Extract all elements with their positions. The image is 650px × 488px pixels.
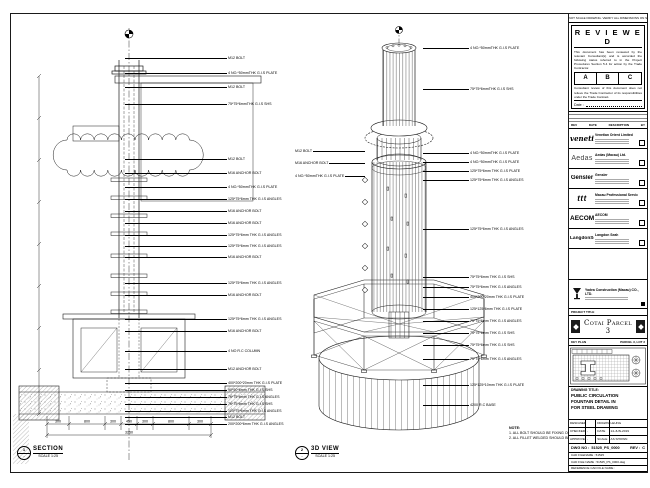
callout-label: 4 NO.*50mmTHK G.I.S PLATE xyxy=(469,161,519,165)
consultant-logo: Aedas xyxy=(570,155,594,162)
callout-label: 125*125*10mm THK G.I.S PLATE xyxy=(469,384,524,388)
callout: M12 BOLT xyxy=(125,416,279,419)
leader-line xyxy=(423,359,469,360)
callout: 125*75*6mm THK G.I.S ANGLES xyxy=(125,245,279,248)
status-boxes: A B C xyxy=(574,72,642,85)
callout: 75*75*6mm THK G.I.S ANGLES xyxy=(125,396,279,399)
leader-line xyxy=(423,345,469,346)
rev-label: REV : xyxy=(630,446,640,450)
callout: M16 ANCHOR BOLT xyxy=(295,162,365,165)
date-label: Date : xyxy=(574,103,584,107)
callout: M12 BOLT xyxy=(125,158,279,161)
view-scale: SCALE 1:25 xyxy=(311,454,339,459)
callout: M16 ANCHOR BOLT xyxy=(125,330,279,333)
leader-line xyxy=(125,369,227,370)
consultant-info: AECOM xyxy=(595,213,638,223)
callout: 75*75*6mm THK G.I.S SHS xyxy=(423,344,571,347)
approved-value: - xyxy=(586,436,596,444)
checkbox-icon xyxy=(639,240,645,246)
callout: 4 NO.*50mmTHK G.I.S PLATE xyxy=(295,175,365,178)
leader-line xyxy=(125,383,227,384)
status-a: A xyxy=(575,73,597,84)
leader-line xyxy=(125,187,227,188)
callout-label: 75*75*6mm THK G.I.S ANGLES xyxy=(469,320,521,324)
callout-label: 400*200*20mm THK G.I.S PLATE xyxy=(469,296,524,300)
checked-value: - xyxy=(586,428,596,436)
callout-label: 75*75*6mmTHK G.I.S SHS xyxy=(469,88,514,92)
scale-value: AS SHOWN xyxy=(610,436,647,444)
leader-line xyxy=(125,104,227,105)
callout: 125*75*6mm THK G.I.S ANGLES xyxy=(125,282,279,285)
dwg-no-row: DWG NO : 51525_PS_0000 REV : C xyxy=(569,444,647,453)
iso-top-assembly xyxy=(371,43,427,136)
callout-label: M12 BOLT xyxy=(295,150,313,154)
reviewed-stamp: R E V I E W E D This document has been r… xyxy=(571,25,645,109)
callout-label: M12 BOLT xyxy=(227,416,245,420)
address-lines xyxy=(595,159,638,164)
consultant-row: AECOM AECOM xyxy=(569,209,647,229)
callout: M12 BOLT xyxy=(295,150,365,153)
leader-line xyxy=(423,162,469,163)
leader-line xyxy=(125,331,227,332)
callout-label: 4 NO R.C COLUMN xyxy=(227,350,260,354)
callout-label: M12 ANCHOR BOLT xyxy=(227,368,261,372)
leader-line xyxy=(125,424,227,425)
callout: 75*75*6mmTHK G.I.S SHS xyxy=(125,103,279,106)
leader-line xyxy=(313,151,365,152)
leader-line xyxy=(423,89,469,90)
callout: 4 NO.*50mmTHK G.I.S PLATE xyxy=(125,186,279,189)
leader-line xyxy=(423,277,469,278)
drawing-title-block: DRAWING TITLE: PUBLIC CIRCULATION FOUNTA… xyxy=(569,387,647,420)
leader-line xyxy=(125,223,227,224)
view-scale: SCALE 1:25 xyxy=(33,454,63,459)
rev-col: REV xyxy=(571,123,577,127)
status-b: B xyxy=(597,73,619,84)
leader-line xyxy=(423,297,469,298)
designed-label: DESIGNED xyxy=(569,420,586,428)
leader-line xyxy=(345,176,365,177)
section-view: 300 800 300 450 300 800 300 3250 M12 BOL… xyxy=(13,22,285,468)
callout-label: 4200 R.C BASE xyxy=(469,404,496,408)
view-bubble: 1 - xyxy=(17,446,31,460)
bubble-ref: - xyxy=(18,454,30,460)
checkbox-icon xyxy=(639,200,645,206)
contractor-row: Yadea Construction (Macau) CO., LTD. xyxy=(569,280,647,309)
callout: 4 NO.*50mmTHK G.I.S PLATE xyxy=(423,161,571,164)
leader-line xyxy=(125,73,227,74)
rev-value: C xyxy=(642,446,645,450)
consultant-info: Aedas (Macau) Ltd. xyxy=(595,153,638,163)
cad-file-row: REFERENCE CAD FILE NAME : xyxy=(569,466,647,473)
callout: M16 ANCHOR BOLT xyxy=(125,172,279,175)
datum-marker-icon xyxy=(396,27,403,34)
svg-text:300: 300 xyxy=(110,420,116,424)
leader-line xyxy=(125,397,227,398)
iso-main-cylinder xyxy=(372,155,426,319)
callout: 125*75*6mm THK G.I.S PLATE xyxy=(423,170,571,173)
contractor-logo-icon xyxy=(571,287,583,300)
callout: 4 NO.*50mmTHK G.I.S PLATE xyxy=(423,152,571,155)
callout: M16 ANCHOR BOLT xyxy=(125,256,279,259)
callout-label: 75*75*6mm THK G.I.S SHS xyxy=(469,344,514,348)
date-value: 14-JUN-2019 xyxy=(610,428,647,436)
callout: M16 ANCHOR BOLT xyxy=(125,210,279,213)
callout-label: 125*75*6mm THK G.I.S ANGLES xyxy=(227,198,281,202)
callout-label: 75*75*6mmTHK G.I.S SHS xyxy=(227,103,272,107)
leader-line xyxy=(125,411,227,412)
leader-line xyxy=(423,180,469,181)
drawn-value: LEUNG xyxy=(610,420,647,428)
callout-label: 90*50*6mm THK G.I.S SHS xyxy=(227,389,272,393)
leader-line xyxy=(423,333,469,334)
consultant-logo: Gensler xyxy=(570,175,594,181)
consultant-logo: ttt xyxy=(570,194,594,203)
stamp-date-row: Date : xyxy=(574,100,642,107)
callout: 125*75*6mm THK G.I.S ANGLES xyxy=(423,179,571,182)
date-line xyxy=(586,103,642,107)
leader-line xyxy=(125,211,227,212)
consultant-row: LangdonSeah Langdon Seah xyxy=(569,229,647,249)
checkbox-icon xyxy=(639,140,645,146)
checkbox-icon xyxy=(639,180,645,186)
key-plan-label: KEY PLAN xyxy=(571,340,586,344)
callout: M12 ANCHOR BOLT xyxy=(125,368,279,371)
callout-label: 4 NO.*50mmTHK G.I.S PLATE xyxy=(469,47,519,51)
leader-line xyxy=(423,48,469,49)
callout-label: 125*75*6mm THK G.I.S ANGLES xyxy=(227,282,281,286)
consultant-name: AECOM xyxy=(595,213,638,217)
consultant-name: Macau Professional Services Ltd. xyxy=(595,193,638,197)
callout: 4 NO R.C COLUMN xyxy=(125,350,279,353)
section-callouts: M12 BOLT 4 NO.*50mmTHK G.I.S PLATE M12 B… xyxy=(125,22,279,468)
callout-label: 75*75*6mm THK G.I.S SHS xyxy=(469,332,514,336)
leader-line xyxy=(125,417,227,418)
consultant-name: Aedas (Macau) Ltd. xyxy=(595,153,638,157)
callout-label: M16 ANCHOR BOLT xyxy=(227,172,261,176)
designed-value xyxy=(586,420,596,428)
revision-rows xyxy=(569,111,647,122)
callout: 75*75*6mm THK G.I.S ANGLES xyxy=(423,286,571,289)
leader-line xyxy=(125,319,227,320)
callout: 75*75*6mm THK G.I.S ANGLES xyxy=(423,320,571,323)
view-name: SECTION xyxy=(33,446,63,454)
leader-line xyxy=(423,287,469,288)
dwg-no-label: DWG NO : xyxy=(571,446,589,450)
note-title: NOTE: xyxy=(509,426,520,430)
title-block: DO NOT SCALE DRAWING. VERIFY ALL DIMENSI… xyxy=(568,14,647,472)
leader-line xyxy=(329,163,365,164)
revision-header: REV DATE DESCRIPTION BY xyxy=(569,122,647,129)
leader-line xyxy=(125,235,227,236)
callout-label: 75*75*6mm THK G.I.S ANGLES xyxy=(227,396,279,400)
consultant-logo: LangdonSeah xyxy=(570,236,594,241)
no-scale-note: DO NOT SCALE DRAWING. VERIFY ALL DIMENSI… xyxy=(569,14,647,23)
callout-label: M12 BOLT xyxy=(227,57,245,61)
callout-label: M12 BOLT xyxy=(227,86,245,90)
consultant-info: Langdon Seah xyxy=(595,233,638,243)
callout: M16 ANCHOR BOLT xyxy=(125,294,279,297)
callout-label: 125*75*6mm THK G.I.S ANGLES xyxy=(469,179,523,183)
leader-line xyxy=(423,153,469,154)
dwg-no: 51525_PS_0000 xyxy=(591,446,628,450)
leader-line xyxy=(125,295,227,296)
address-lines xyxy=(595,139,638,144)
callout-label: 125*75*6mm THK G.I.S ANGLES xyxy=(227,410,281,414)
leader-line xyxy=(125,351,227,352)
ornament-icon xyxy=(636,320,645,333)
leader-line xyxy=(125,159,227,160)
callout: 125*75*6mm THK G.I.S ANGLES xyxy=(125,198,279,201)
checkbox-icon xyxy=(639,220,645,226)
callout: 4 NO.*50mmTHK G.I.S PLATE xyxy=(125,72,279,75)
callout: 4200 R.C BASE xyxy=(423,404,571,407)
address-lines xyxy=(595,239,638,244)
callout-label: 125*75*6mm THK G.I.S ANGLES xyxy=(227,245,281,249)
leader-line xyxy=(423,229,469,230)
drawing-frame: 300 800 300 450 300 800 300 3250 M12 BOL… xyxy=(10,13,648,473)
filled-checkbox-icon xyxy=(641,302,645,306)
drawn-label: DRAWN xyxy=(596,420,609,428)
leader-line xyxy=(125,199,227,200)
drawing-title-line: FOR STEEL DRAWING xyxy=(571,405,645,411)
callout-label: 4 NO.*50mmTHK G.I.S PLATE xyxy=(469,152,519,156)
callout: 75*75*6mmTHK G.I.S SHS xyxy=(423,88,571,91)
consultant-info: Gensler xyxy=(595,173,638,183)
callout-label: 125*75*6mm THK G.I.S PLATE xyxy=(469,170,520,174)
callout: M16 ANCHOR BOLT xyxy=(125,222,279,225)
callout-label: 75*75*6mm THK G.I.S SHS xyxy=(469,276,514,280)
cad-file-rows: CAD FILENAME : 51525 CAD FILE NAME : 515… xyxy=(569,453,647,473)
callout-label: 4 NO.*50mmTHK G.I.S PLATE xyxy=(295,175,345,179)
callout-label: 75*75*6mm THK G.I.S SHS xyxy=(227,403,272,407)
callout: 75*75*6mm THK G.I.S ANGLES xyxy=(423,358,571,361)
svg-text:300: 300 xyxy=(55,420,61,424)
iso-view-label: 2 - 3D VIEW SCALE 1:25 xyxy=(295,446,339,460)
signoff-fields: DESIGNED DRAWN LEUNG CHECKED - DATE 14-J… xyxy=(569,420,647,444)
callout-label: 125*75*6mm THK G.I.S ANGLES xyxy=(469,228,523,232)
callout: 125*75*6mm THK G.I.S ANGLES xyxy=(125,410,279,413)
leader-line xyxy=(125,87,227,88)
approved-label: APPROVED xyxy=(569,436,586,444)
callout: 200*200*6mm THK G.I.S ANGLES xyxy=(125,423,279,426)
callout-label: 400*200*20mm THK G.I.S PLATE xyxy=(227,382,282,386)
key-plan-drawing xyxy=(569,346,647,386)
key-plan xyxy=(569,346,647,387)
key-plan-zone: PARCEL 3, LOT 2 xyxy=(620,340,645,344)
callout-label: M16 ANCHOR BOLT xyxy=(227,222,261,226)
leader-line xyxy=(125,58,227,59)
callout-label: 75*75*6mm THK G.I.S ANGLES xyxy=(469,286,521,290)
contractor-info: Yadea Construction (Macau) CO., LTD. xyxy=(585,288,639,300)
consultant-name: Langdon Seah xyxy=(595,233,638,237)
iso-center-pedestal xyxy=(389,312,409,338)
iso-callouts-right: 4 NO.*50mmTHK G.I.S PLATE 75*75*6mmTHK G… xyxy=(423,22,571,468)
view-name: 3D VIEW xyxy=(311,446,339,454)
callout: 125*75*6mm THK G.I.S ANGLES xyxy=(125,234,279,237)
callout: 75*75*6mm THK G.I.S SHS xyxy=(423,276,571,279)
project-title-label: PROJECT TITLE xyxy=(569,309,647,316)
callout-label: M16 ANCHOR BOLT xyxy=(227,330,261,334)
callout: 125*75*6mm THK G.I.S ANGLES xyxy=(423,228,571,231)
leader-line xyxy=(423,171,469,172)
ornament-icon xyxy=(571,320,580,333)
stamp-paragraph: Consultant review of this document does … xyxy=(574,86,642,99)
callout-label: 125*75*6mm THK G.I.S ANGLES xyxy=(227,234,281,238)
callout-label: M16 ANCHOR BOLT xyxy=(227,256,261,260)
callout: 75*75*6mm THK G.I.S SHS xyxy=(125,403,279,406)
consultant-row: venetian Venetian Orient Limited xyxy=(569,129,647,149)
callout-label: M16 ANCHOR BOLT xyxy=(227,294,261,298)
stamp-title: R E V I E W E D xyxy=(574,27,642,48)
leader-line xyxy=(125,257,227,258)
callout: 125*75*6mm THK G.I.S ANGLES xyxy=(125,318,279,321)
project-banner: Cotai Parcel 3 xyxy=(569,316,647,339)
address-lines xyxy=(595,219,638,224)
callout-label: 75*75*6mm THK G.I.S ANGLES xyxy=(469,358,521,362)
callout-label: M16 ANCHOR BOLT xyxy=(227,210,261,214)
status-c: C xyxy=(619,73,641,84)
callout-label: 4 NO.*50mmTHK G.I.S PLATE xyxy=(227,72,277,76)
address-lines xyxy=(595,199,638,204)
callout: 400*200*20mm THK G.I.S PLATE xyxy=(423,296,571,299)
leader-line xyxy=(125,283,227,284)
callout: 125*125*10mm THK G.I.S PLATE xyxy=(423,384,571,387)
date-col: DATE xyxy=(589,123,597,127)
project-title: Cotai Parcel 3 xyxy=(581,319,635,335)
iso-view: 4 NO.*50mmTHK G.I.S PLATE 75*75*6mmTHK G… xyxy=(287,22,575,468)
callout: 90*50*6mm THK G.I.S SHS xyxy=(125,389,279,392)
leader-line xyxy=(423,405,469,406)
consultant-row: Aedas Aedas (Macau) Ltd. xyxy=(569,149,647,169)
empty-row xyxy=(569,249,647,280)
consultant-logo: venetian xyxy=(570,134,594,143)
consultant-row: Gensler Gensler xyxy=(569,169,647,189)
callout: M12 BOLT xyxy=(125,57,279,60)
leader-line xyxy=(125,390,227,391)
drawing-sheet: 300 800 300 450 300 800 300 3250 M12 BOL… xyxy=(0,0,650,488)
callout-label: M16 ANCHOR BOLT xyxy=(295,162,329,166)
callout-label: 125*125*6mm THK G.I.S PLATE xyxy=(469,308,522,312)
leader-line xyxy=(423,385,469,386)
callout: 4 NO.*50mmTHK G.I.S PLATE xyxy=(423,47,571,50)
address-lines xyxy=(595,179,638,184)
callout: M12 BOLT xyxy=(125,86,279,89)
consultant-name: Gensler xyxy=(595,173,638,177)
consultant-info: Macau Professional Services Ltd. xyxy=(595,193,638,203)
consultant-logo: AECOM xyxy=(570,215,594,222)
consultant-name: Venetian Orient Limited xyxy=(595,133,638,137)
scale-label: SCALE xyxy=(596,436,609,444)
callout-label: 4 NO.*50mmTHK G.I.S PLATE xyxy=(227,186,277,190)
bubble-ref: - xyxy=(296,454,308,460)
leader-line xyxy=(125,404,227,405)
checked-label: CHECKED xyxy=(569,428,586,436)
svg-text:800: 800 xyxy=(84,420,90,424)
description-col: DESCRIPTION xyxy=(609,123,630,127)
callout-label: 200*200*6mm THK G.I.S ANGLES xyxy=(227,423,283,427)
address-lines xyxy=(585,297,639,300)
callout: 125*125*6mm THK G.I.S PLATE xyxy=(423,308,571,311)
leader-line xyxy=(423,309,469,310)
consultant-info: Venetian Orient Limited xyxy=(595,133,638,143)
consultant-row: ttt Macau Professional Services Ltd. xyxy=(569,189,647,209)
contractor-name: Yadea Construction (Macau) CO., LTD. xyxy=(585,288,639,296)
leader-line xyxy=(125,173,227,174)
drawing-title-label: DRAWING TITLE: xyxy=(571,388,645,392)
callout: 75*75*6mm THK G.I.S SHS xyxy=(423,332,571,335)
callout-label: M12 BOLT xyxy=(227,158,245,162)
stamp-paragraph: This document has been reviewed by the r… xyxy=(574,50,642,71)
key-plan-header: KEY PLAN PARCEL 3, LOT 2 xyxy=(569,339,647,346)
leader-line xyxy=(423,321,469,322)
consultant-list: venetian Venetian Orient Limited Aedas A… xyxy=(569,129,647,249)
iso-callouts-left: M12 BOLT M16 ANCHOR BOLT 4 NO.*50mmTHK G… xyxy=(295,22,365,468)
by-col: BY xyxy=(641,123,645,127)
checkbox-icon xyxy=(639,160,645,166)
view-bubble: 2 - xyxy=(295,446,309,460)
callout: 400*200*20mm THK G.I.S PLATE xyxy=(125,382,279,385)
leader-line xyxy=(125,246,227,247)
callout-label: 125*75*6mm THK G.I.S ANGLES xyxy=(227,318,281,322)
date-label: DATE xyxy=(596,428,609,436)
section-view-label: 1 - SECTION SCALE 1:25 xyxy=(17,446,63,460)
